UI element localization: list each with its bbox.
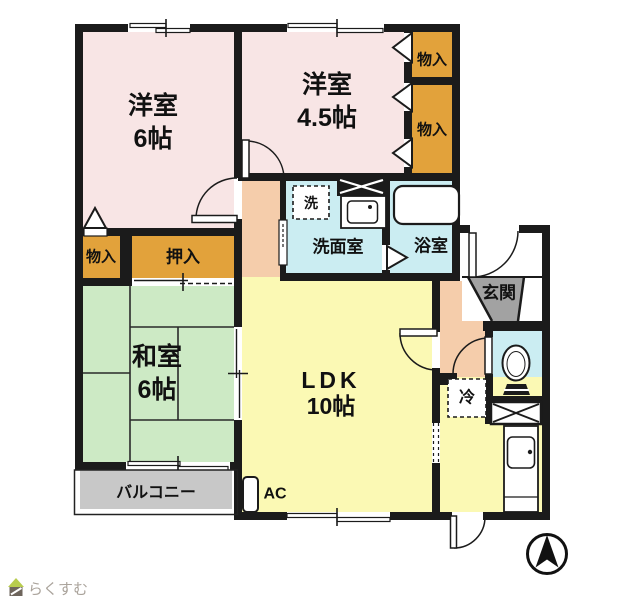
washbasin — [341, 196, 386, 228]
floorplan-image: 洋室 6帖 洋室 4.5帖 和室 6帖 LDK 10帖 物入 押入 物入 物入 … — [0, 0, 640, 599]
label-washroom: 洗面室 — [313, 237, 364, 257]
pass-through-kitchen — [432, 423, 440, 463]
bathtub — [394, 186, 459, 224]
north-arrow-icon — [528, 535, 567, 574]
label-ldk-size: 10帖 — [307, 393, 356, 419]
label-ldk-name: LDK — [301, 367, 360, 393]
label-western45-size: 4.5帖 — [297, 104, 357, 132]
storage-box — [491, 402, 541, 424]
label-washer: 洗 — [304, 195, 318, 211]
ac-unit — [243, 477, 258, 512]
label-japanese6-size: 6帖 — [138, 376, 177, 404]
label-japanese6-name: 和室 — [132, 342, 182, 371]
label-balcony: バルコニー — [116, 484, 196, 502]
watermark: らくすむ — [8, 578, 88, 598]
room-western45-floor — [242, 32, 404, 173]
label-closet-br: 物入 — [417, 121, 447, 139]
watermark-text: らくすむ — [28, 581, 88, 598]
washer-counter — [337, 177, 386, 196]
sliding-door-washroom — [279, 220, 287, 265]
label-closet-tr: 物入 — [417, 51, 447, 69]
label-bathroom: 浴室 — [414, 236, 448, 256]
label-western6-size: 6帖 — [134, 125, 173, 153]
label-western45-name: 洋室 — [302, 70, 352, 99]
floorplan-svg: 洋室 6帖 洋室 4.5帖 和室 6帖 LDK 10帖 物入 押入 物入 物入 … — [0, 0, 640, 599]
toilet-icon — [503, 346, 531, 396]
rakusumu-house-icon — [8, 578, 24, 596]
label-ac: AC — [263, 486, 287, 503]
corridor-floor — [242, 181, 280, 281]
label-oshiire: 押入 — [166, 247, 200, 267]
label-entrance: 玄関 — [482, 283, 516, 303]
label-closet-left: 物入 — [86, 248, 116, 266]
room-japanese6-floor — [83, 286, 234, 462]
label-fridge: 冷 — [459, 388, 475, 407]
door-kitchen-exit — [451, 512, 486, 548]
label-western6-name: 洋室 — [128, 91, 178, 120]
kitchen-counter — [504, 426, 538, 512]
